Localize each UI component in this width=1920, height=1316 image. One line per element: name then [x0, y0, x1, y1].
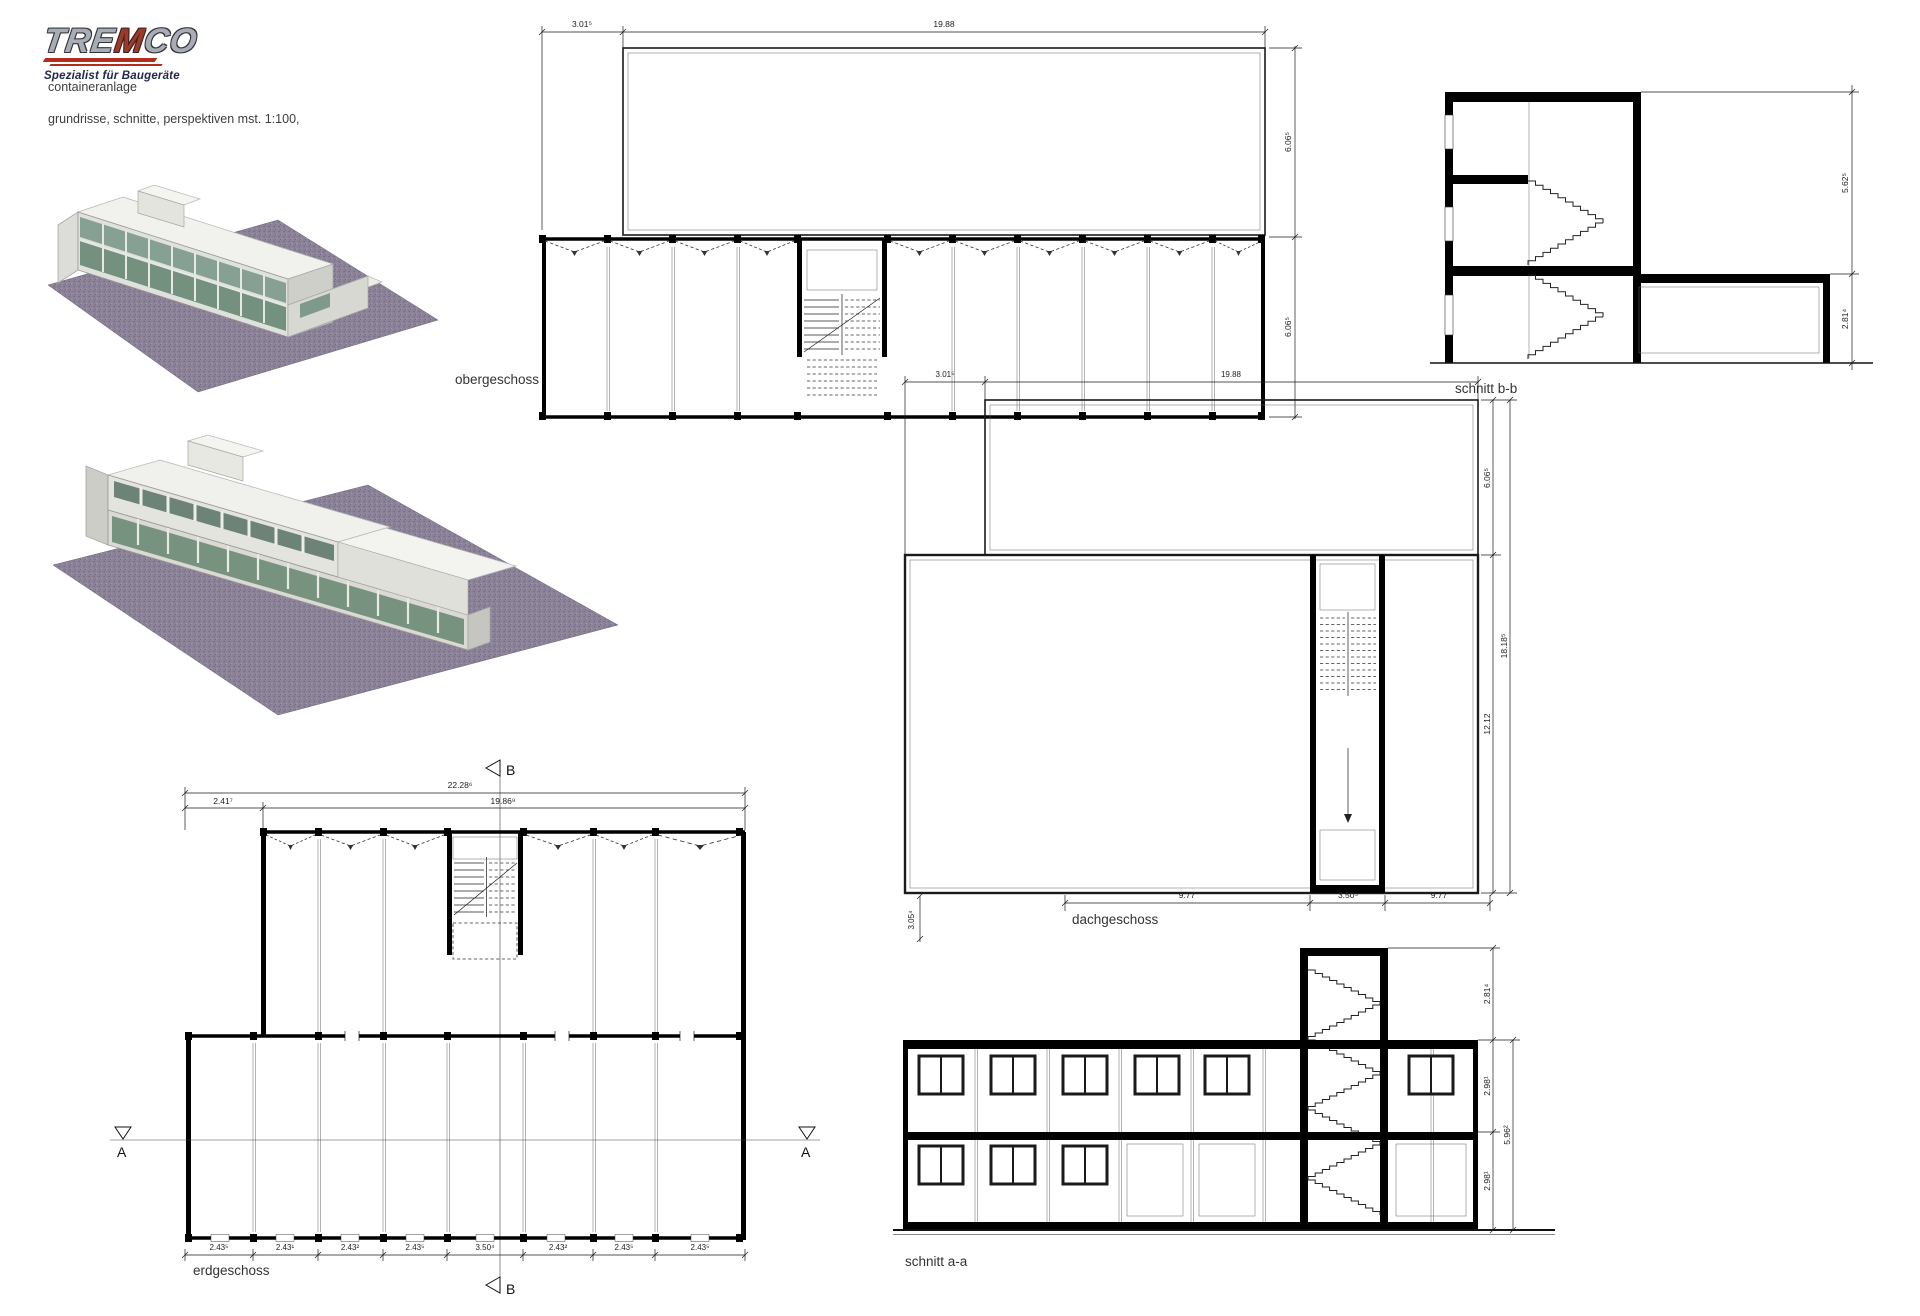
logo-underline-icon [43, 58, 158, 62]
erdgeschoss-top-dimensions: 22.28⁶ 2.41⁷ 19.86⁹ [182, 780, 748, 830]
section-marker-a-left: A [117, 1144, 127, 1160]
dim-value: 3.50⁵ [1338, 890, 1358, 900]
dachgeschoss-label: dachgeschoss [1072, 912, 1159, 927]
dim-value: 2.43⁵ [210, 1243, 229, 1252]
dim-value: 2.98¹ [1482, 1076, 1492, 1096]
dim-value: 2.81⁴ [1482, 984, 1492, 1005]
dachgeschoss-top-dimension: 3.01⁵ 19.88 [902, 370, 1481, 555]
drawing-sheet: { "branding": { "logo_part1": "TRE", "lo… [0, 0, 1920, 1316]
erdgeschoss-label: erdgeschoss [193, 1263, 270, 1278]
section-line-a: A A [110, 1127, 820, 1160]
obergeschoss-plan: 3.01⁵ 19.88 [440, 8, 1320, 420]
stair-tower [1300, 948, 1388, 1230]
obergeschoss-label: obergeschoss [455, 372, 539, 387]
dim-value: 3.05⁴ [907, 910, 916, 930]
dim-value: 22.28⁶ [448, 780, 473, 790]
dim-value: 5.62⁵ [1840, 173, 1850, 193]
dim-value: 2.43² [549, 1243, 568, 1252]
logo-wordmark: TREMCO [42, 26, 306, 56]
dim-value: 6.06⁵ [1283, 132, 1293, 152]
dim-value: 18.18⁵ [1499, 634, 1509, 659]
dim-value: 6.06⁵ [1283, 317, 1293, 337]
stair-tower [1445, 92, 1641, 363]
dim-value: 2.81⁴ [1840, 309, 1850, 330]
dim-value: 9.77 [1431, 890, 1448, 900]
lower-windows [919, 1146, 1107, 1184]
dim-value: 2.43⁵ [615, 1243, 634, 1252]
section-marker-a-right: A [801, 1144, 811, 1160]
obergeschoss-stair [797, 239, 887, 395]
dachgeschoss-stair [1310, 555, 1385, 893]
tremco-logo: TREMCO Spezialist für Baugeräte [44, 26, 304, 82]
dim-value: 19.86⁹ [491, 796, 516, 806]
upper-roof [985, 400, 1478, 555]
dim-value: 19.88 [1221, 370, 1242, 379]
window-symbols [545, 241, 1262, 256]
dim-value: 3.01⁵ [936, 370, 955, 379]
dim-value: 3.50⁴ [475, 1243, 495, 1252]
obergeschoss-upper-hall [623, 48, 1265, 235]
schnitt-aa-label: schnitt a-a [905, 1254, 968, 1269]
schnitt-aa-section: 2.81⁴ 2.98¹ 2.98¹ 5.96² schnitt a-a [893, 940, 1573, 1285]
schnitt-bb-section: 5.62⁵ 2.81⁴ schnitt b-b [1425, 55, 1915, 410]
dim-value: 12.12 [1482, 713, 1492, 735]
dachgeschoss-left-dimension: 3.05⁴ [907, 893, 923, 942]
logo-text-tre: TRE [41, 22, 117, 60]
ground-line [893, 1230, 1555, 1235]
obergeschoss-right-dimension: 6.06⁵ 6.06⁵ [1269, 45, 1302, 420]
dim-value: 9.77 [1179, 890, 1196, 900]
lower-roof [905, 555, 1478, 893]
erdgeschoss-stair [447, 832, 523, 959]
dachgeschoss-right-dimension: 6.06⁵ 12.12 18.18⁵ [1481, 397, 1517, 896]
dim-value: 5.96² [1502, 1125, 1512, 1145]
low-container-wing [1633, 274, 1830, 363]
dim-value: 6.06⁵ [1482, 468, 1492, 488]
sheet-subtitle: grundrisse, schnitte, perspektiven mst. … [48, 112, 300, 126]
building-body [903, 1040, 1478, 1230]
dim-value: 2.98¹ [1482, 1171, 1492, 1191]
dim-value: 2.43¹ [276, 1243, 295, 1252]
dachgeschoss-plan: 3.01⁵ 19.88 [893, 368, 1543, 943]
section-marker-b-bottom: B [506, 1281, 515, 1297]
erdgeschoss-middle-wall [185, 1031, 745, 1041]
erdgeschoss-plan: B B 22.28⁶ 2.41⁷ 19.86⁹ [95, 745, 855, 1316]
logo-underline2-icon [49, 64, 162, 66]
perspective-2-render [38, 385, 638, 735]
obergeschoss-top-dimension: 3.01⁵ 19.88 [539, 19, 1268, 230]
dim-value: 2.43⁵ [691, 1243, 710, 1252]
section-line-b: B B [486, 760, 515, 1297]
project-title: containeranlage [48, 80, 137, 94]
perspective-1-render [38, 185, 448, 400]
dim-value: 3.01⁵ [572, 19, 592, 29]
dim-value: 2.41⁷ [213, 796, 233, 806]
dim-value: 19.88 [933, 19, 955, 29]
dim-value: 2.43⁵ [406, 1243, 425, 1252]
section-marker-b-top: B [506, 762, 515, 778]
erdgeschoss-bottom-dimension: 2.43⁵ 2.43¹ 2.43² 2.43⁵ 3.50⁴ 2.43² 2.43… [182, 1243, 748, 1261]
dim-value: 2.43² [341, 1243, 360, 1252]
logo-text-co: CO [142, 22, 200, 60]
lower-panel-frames [1127, 1144, 1466, 1216]
